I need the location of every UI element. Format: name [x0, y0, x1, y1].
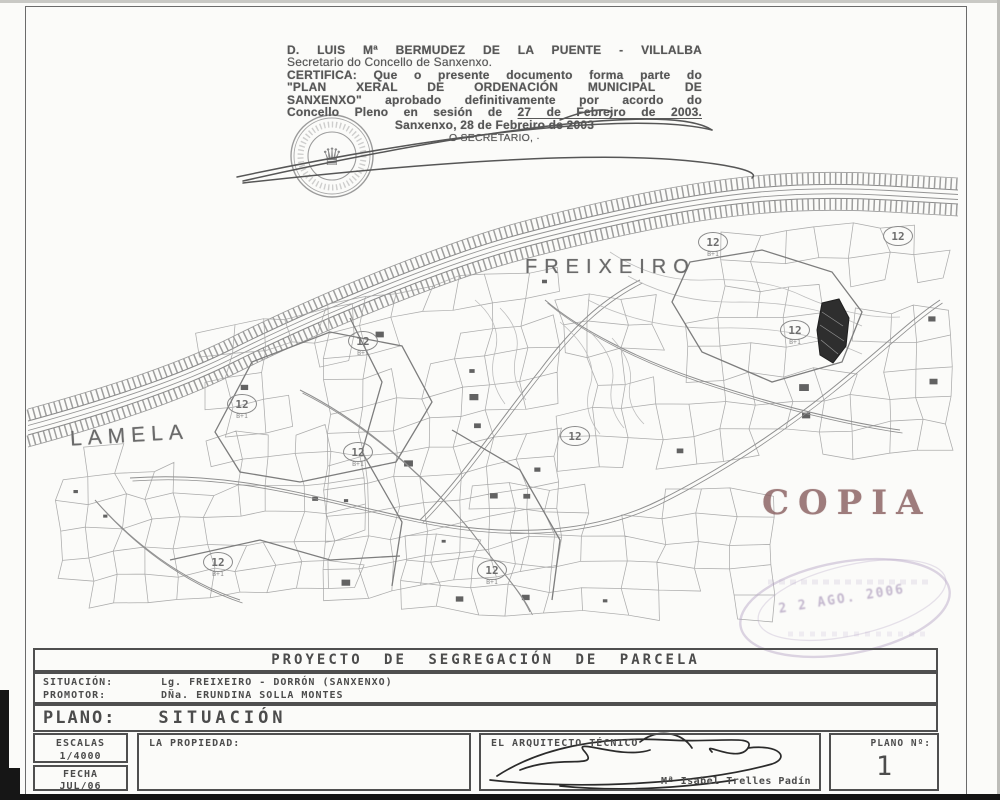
secretary-caption: O SECRETARIO, ·: [287, 132, 702, 144]
zone-marker: 12B+1: [477, 560, 507, 580]
scanned-document-page: ♛ D. LUIS Mª BERMUDEZ DE LA PUENTE - V: [0, 0, 1000, 800]
promotor-label: PROMOTOR:: [43, 689, 161, 702]
zone-marker: 12B+1: [698, 232, 728, 252]
situacion-label: SITUACIÓN:: [43, 676, 161, 689]
scan-edge-top: [0, 0, 1000, 3]
certification-line: "PLAN XERAL DE ORDENACIÓN MUNICIPAL DE: [287, 81, 702, 93]
scan-edge-bottom: [0, 794, 1000, 800]
promotor-value: DÑa. ERUNDINA SOLLA MONTES: [161, 689, 344, 702]
zone-marker: 12B+1: [343, 442, 373, 462]
propiedad-label: LA PROPIEDAD:: [149, 738, 469, 749]
arquitecto-name: Mª Isabel Trelles Padín: [661, 776, 811, 787]
arquitecto-box: EL ARQUITECTO TÉCNICO Mª Isabel Trelles …: [479, 733, 821, 791]
arquitecto-label: EL ARQUITECTO TÉCNICO: [491, 738, 819, 749]
fecha-box: FECHA JUL/06: [33, 765, 128, 791]
escalas-label: ESCALAS: [35, 737, 126, 750]
zone-marker: 12B+1: [780, 320, 810, 340]
zone-marker-sub: B+1: [352, 460, 364, 468]
escalas-value: 1/4000: [35, 750, 126, 763]
promotor-row: PROMOTOR: DÑa. ERUNDINA SOLLA MONTES: [43, 689, 936, 702]
situacion-value: Lg. FREIXEIRO - DORRÓN (SANXENXO): [161, 676, 393, 689]
place-label-freixeiro: FREIXEIRO: [525, 256, 696, 279]
zone-marker-sub: B+1: [707, 250, 719, 258]
zone-marker-sub: B+1: [357, 349, 369, 357]
certification-date: Sanxenxo, 28 de Febreiro de 2003: [287, 119, 702, 131]
zone-marker: 12B+1: [227, 394, 257, 414]
certification-text-block: D. LUIS Mª BERMUDEZ DE LA PUENTE - VILLA…: [287, 44, 702, 144]
fecha-label: FECHA: [35, 769, 126, 781]
plano-value: SITUACIÓN: [158, 708, 286, 728]
fecha-value: JUL/06: [35, 781, 126, 793]
zone-marker: 12: [883, 226, 913, 246]
plano-number-value: 1: [831, 751, 937, 782]
plano-box: PLANO: SITUACIÓN: [33, 704, 938, 732]
project-title-box: PROYECTO DE SEGREGACIÓN DE PARCELA: [33, 648, 938, 672]
zone-marker: 12B+1: [203, 552, 233, 572]
session-text: Concello Pleno en sesión de: [287, 105, 518, 119]
project-info-box: SITUACIÓN: Lg. FREIXEIRO - DORRÓN (SANXE…: [33, 672, 938, 704]
zone-marker: 12: [560, 426, 590, 446]
scan-edge-corner: [0, 768, 20, 800]
zone-marker: 12B+1: [348, 331, 378, 351]
escalas-box: ESCALAS 1/4000: [33, 733, 128, 763]
certification-line: Concello Pleno en sesión de 27 de Febrei…: [287, 106, 702, 118]
propiedad-box: LA PROPIEDAD:: [137, 733, 471, 791]
situacion-row: SITUACIÓN: Lg. FREIXEIRO - DORRÓN (SANXE…: [43, 676, 936, 689]
plano-number-label: PLANO Nº:: [871, 738, 931, 749]
zone-marker-sub: B+1: [212, 570, 224, 578]
plano-label: PLANO:: [43, 708, 116, 728]
zone-marker-sub: B+1: [789, 338, 801, 346]
zone-marker-sub: B+1: [236, 412, 248, 420]
zone-marker-sub: B+1: [486, 578, 498, 586]
session-date: 27 de Febreiro de 2003.: [518, 105, 702, 119]
plano-number-box: PLANO Nº: 1: [829, 733, 939, 791]
certifier-role: Secretario do Concello de Sanxenxo.: [287, 56, 702, 68]
copia-watermark-stamp: COPIA: [762, 483, 932, 523]
